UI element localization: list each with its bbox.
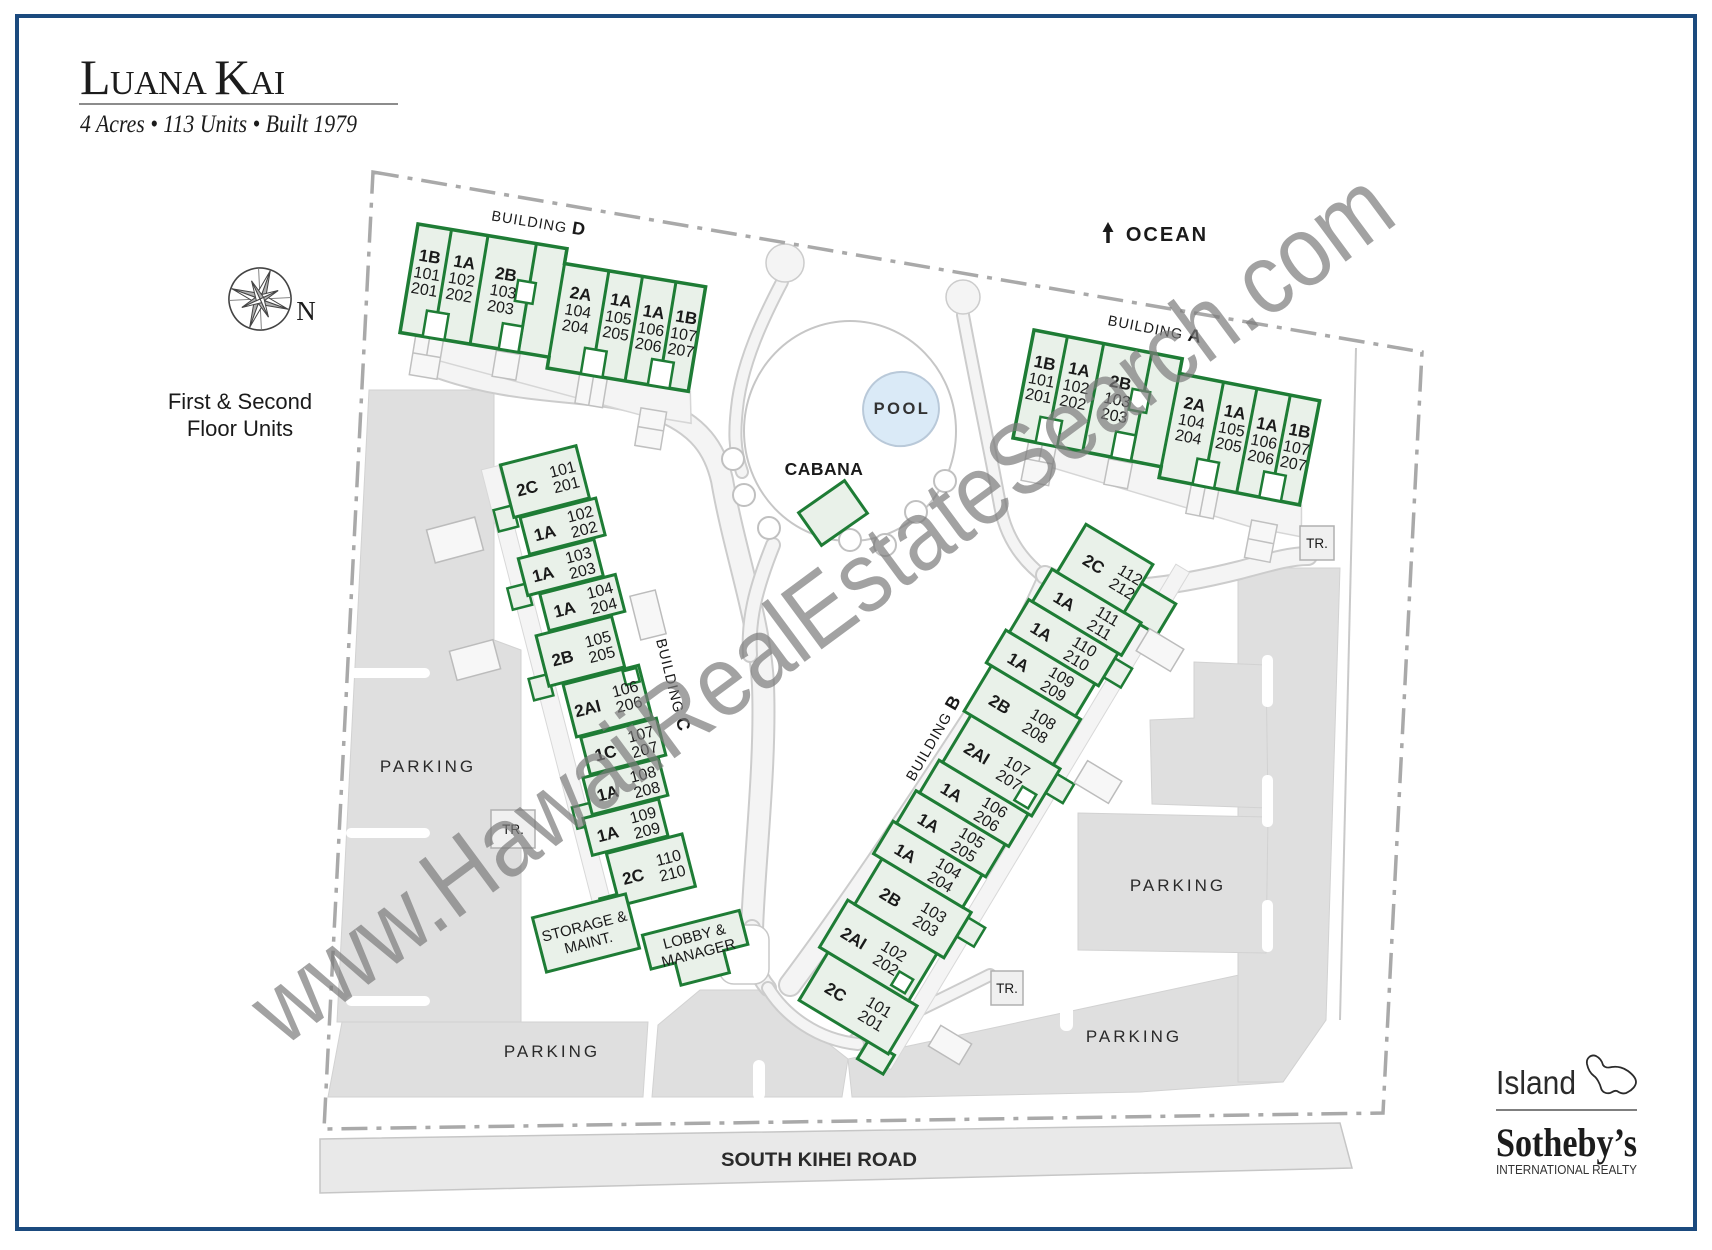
svg-text:Sotheby’s: Sotheby’s	[1496, 1120, 1637, 1165]
svg-text:Floor Units: Floor Units	[187, 416, 293, 441]
svg-text:OCEAN: OCEAN	[1126, 224, 1208, 246]
svg-text:PARKING: PARKING	[1130, 876, 1226, 895]
svg-text:PARKING: PARKING	[380, 757, 476, 776]
svg-text:SOUTH KIHEI ROAD: SOUTH KIHEI ROAD	[721, 1150, 917, 1171]
svg-text:TR.: TR.	[1306, 536, 1328, 551]
svg-text:Island: Island	[1496, 1064, 1576, 1101]
svg-text:PARKING: PARKING	[1086, 1027, 1182, 1046]
svg-text:CABANA: CABANA	[785, 459, 864, 479]
svg-text:POOL: POOL	[874, 400, 931, 418]
svg-text:INTERNATIONAL REALTY: INTERNATIONAL REALTY	[1496, 1163, 1638, 1177]
svg-text:TR.: TR.	[996, 981, 1018, 996]
svg-text:4 Acres • 113 Units • Built 19: 4 Acres • 113 Units • Built 1979	[80, 111, 357, 138]
svg-text:PARKING: PARKING	[504, 1042, 600, 1061]
svg-text:First & Second: First & Second	[168, 389, 312, 414]
svg-text:N: N	[296, 296, 316, 326]
